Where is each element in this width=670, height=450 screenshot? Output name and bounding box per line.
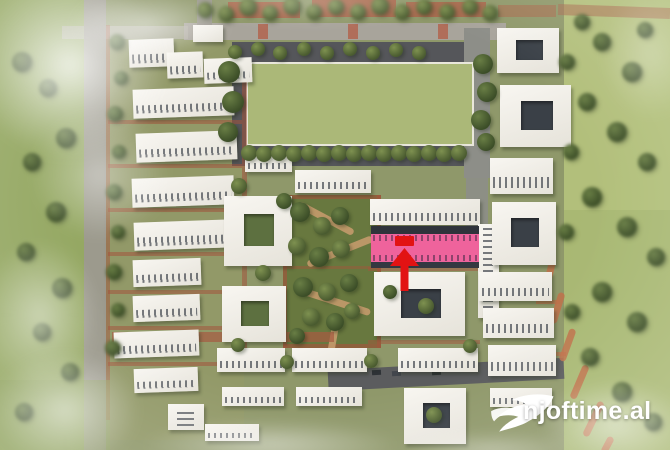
- building: [479, 272, 552, 301]
- tree: [326, 313, 344, 331]
- red-arrow-marker-icon: [386, 232, 422, 292]
- tree: [582, 187, 602, 207]
- tree: [418, 298, 434, 314]
- tree: [288, 237, 306, 255]
- tree: [56, 128, 76, 148]
- tree: [366, 46, 380, 60]
- tree: [331, 207, 349, 225]
- tree: [231, 178, 247, 194]
- building: [222, 286, 286, 342]
- tree: [23, 153, 41, 171]
- ground-patch: [283, 266, 381, 269]
- tree: [228, 45, 242, 59]
- ground-patch: [108, 164, 242, 168]
- tree: [463, 339, 477, 353]
- tree: [273, 46, 287, 60]
- tree: [394, 4, 410, 20]
- building: [488, 345, 556, 376]
- tree: [627, 312, 647, 332]
- ground-patch: [106, 25, 110, 420]
- tree: [426, 407, 442, 423]
- tree: [262, 5, 278, 21]
- tree: [581, 348, 599, 366]
- ground-patch: [556, 0, 670, 210]
- tree: [320, 46, 334, 60]
- tree: [406, 146, 422, 162]
- courtyard: [241, 301, 269, 327]
- tree: [364, 354, 378, 368]
- tree: [346, 146, 362, 162]
- tree: [592, 282, 612, 302]
- building: [134, 219, 235, 250]
- tree: [290, 202, 310, 222]
- tree: [61, 363, 79, 381]
- ground-patch: [348, 24, 358, 39]
- tree: [276, 193, 292, 209]
- courtyard: [516, 40, 543, 61]
- tree: [451, 145, 467, 161]
- tree: [106, 184, 122, 200]
- building: [222, 387, 284, 406]
- tree: [436, 146, 452, 162]
- tree: [297, 42, 311, 56]
- ground-patch: [246, 62, 474, 146]
- tree: [106, 264, 122, 280]
- tree: [39, 79, 57, 97]
- tree: [617, 217, 637, 237]
- courtyard: [521, 101, 552, 130]
- tree: [256, 146, 272, 162]
- watermark-text: njoftime.al: [523, 397, 651, 426]
- tree: [439, 4, 455, 20]
- tree: [33, 323, 51, 341]
- building: [296, 387, 362, 406]
- tree: [107, 106, 123, 122]
- tree: [114, 71, 128, 85]
- ground-patch: [108, 252, 242, 256]
- tree: [241, 145, 257, 161]
- tree: [558, 224, 574, 240]
- tree: [563, 144, 579, 160]
- building: [500, 85, 571, 147]
- building: [133, 86, 235, 119]
- tree: [255, 265, 271, 281]
- building: [217, 348, 285, 372]
- tree: [52, 278, 72, 298]
- tree: [622, 62, 642, 82]
- tree: [218, 122, 238, 142]
- building: [295, 170, 371, 193]
- tree: [647, 248, 665, 266]
- tree: [109, 34, 125, 50]
- tree: [477, 133, 495, 151]
- tree: [564, 304, 580, 320]
- aerial-masterplan-render: njoftime.al: [0, 0, 670, 450]
- building: [168, 404, 204, 430]
- tree: [412, 46, 426, 60]
- tree: [286, 146, 302, 162]
- tree: [105, 340, 121, 356]
- building: [483, 308, 554, 338]
- tree: [218, 6, 234, 22]
- tree: [15, 403, 33, 421]
- tree: [111, 303, 125, 317]
- ground-patch: [498, 5, 556, 17]
- building: [167, 51, 204, 78]
- tree: [112, 145, 126, 159]
- ground-patch: [108, 208, 242, 212]
- courtyard: [244, 214, 274, 246]
- building: [132, 175, 235, 208]
- tree: [559, 54, 575, 70]
- tree: [306, 4, 322, 20]
- ground-patch: [184, 23, 506, 40]
- tree: [313, 217, 331, 235]
- tree: [482, 5, 498, 21]
- tree: [316, 146, 332, 162]
- tree: [350, 4, 366, 20]
- tree: [332, 240, 350, 258]
- tree: [289, 328, 305, 344]
- tree: [574, 14, 590, 30]
- tree: [111, 225, 125, 239]
- tree: [301, 145, 317, 161]
- tree: [318, 283, 336, 301]
- ground-patch: [283, 195, 381, 199]
- tree: [389, 43, 403, 57]
- tree: [331, 145, 347, 161]
- courtyard: [511, 218, 539, 247]
- tree: [391, 145, 407, 161]
- tree: [344, 303, 360, 319]
- tree: [421, 145, 437, 161]
- tree: [293, 277, 313, 297]
- tree: [343, 42, 357, 56]
- building: [114, 330, 200, 359]
- tree: [17, 243, 35, 261]
- tree: [197, 2, 213, 18]
- tree: [477, 82, 497, 102]
- building: [205, 424, 259, 441]
- building: [133, 258, 202, 287]
- tree: [251, 42, 265, 56]
- tree: [302, 308, 320, 326]
- tree: [340, 274, 358, 292]
- tree: [471, 110, 491, 130]
- tree: [376, 146, 392, 162]
- tree: [638, 153, 656, 171]
- tree: [271, 145, 287, 161]
- building: [134, 367, 199, 393]
- building: [490, 158, 553, 194]
- ground-patch: [372, 370, 381, 375]
- tree: [637, 22, 653, 38]
- building: [292, 348, 367, 372]
- building: [492, 202, 556, 265]
- tree: [218, 61, 240, 83]
- tree: [593, 33, 611, 51]
- building: [133, 294, 201, 322]
- building: [193, 25, 223, 42]
- building: [370, 199, 480, 225]
- tree: [361, 145, 377, 161]
- tree: [222, 91, 244, 113]
- tree: [473, 54, 493, 74]
- watermark: njoftime.al: [470, 386, 670, 446]
- ground-patch: [438, 24, 448, 39]
- building: [497, 28, 559, 73]
- tree: [280, 355, 294, 369]
- tree: [578, 93, 596, 111]
- tree: [12, 52, 32, 72]
- ground-patch: [62, 26, 188, 39]
- tree: [46, 202, 66, 222]
- ground-patch: [258, 24, 268, 39]
- tree: [309, 247, 329, 267]
- tree: [231, 338, 245, 352]
- tree: [607, 122, 627, 142]
